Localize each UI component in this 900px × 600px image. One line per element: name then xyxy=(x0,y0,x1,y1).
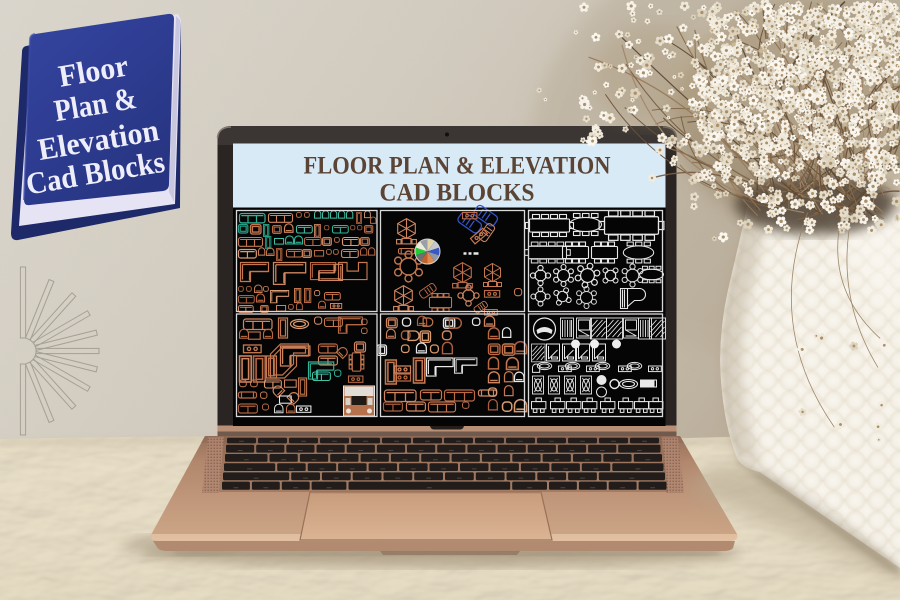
svg-text:FLOOR PLAN & ELEVATION: FLOOR PLAN & ELEVATION xyxy=(304,151,612,180)
svg-text:CAD BLOCKS: CAD BLOCKS xyxy=(380,178,535,207)
